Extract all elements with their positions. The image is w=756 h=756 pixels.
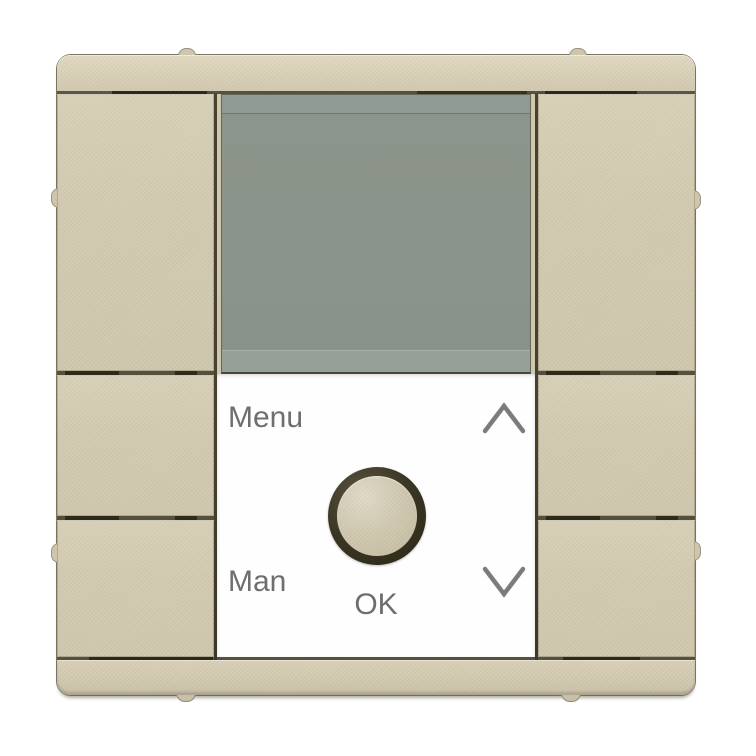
lcd-display <box>221 94 531 374</box>
right-key-middle[interactable] <box>538 375 695 516</box>
right-key-bottom[interactable] <box>538 520 695 657</box>
left-key-bottom[interactable] <box>57 520 214 657</box>
timer-switch-device: Menu Man OK <box>57 55 695 695</box>
bottom-frame-bar <box>57 660 695 695</box>
rotary-knob-button[interactable] <box>328 467 426 565</box>
ok-label: OK <box>217 590 535 620</box>
knob-face <box>337 476 417 556</box>
groove <box>57 657 695 660</box>
right-key-top[interactable] <box>538 94 695 371</box>
product-photo-background: Menu Man OK <box>0 0 756 756</box>
up-button[interactable] <box>481 402 527 435</box>
top-frame-bar <box>57 55 695 91</box>
lcd-status-strip <box>222 95 530 114</box>
chevron-up-icon <box>481 402 527 435</box>
lcd-main-area <box>222 114 530 350</box>
left-key-middle[interactable] <box>57 375 214 516</box>
control-panel: Menu Man OK <box>217 374 535 657</box>
lcd-bottom-strip <box>222 350 530 372</box>
menu-button[interactable]: Menu <box>228 403 303 433</box>
lcd-display-frame <box>217 94 535 374</box>
left-key-top[interactable] <box>57 94 214 371</box>
